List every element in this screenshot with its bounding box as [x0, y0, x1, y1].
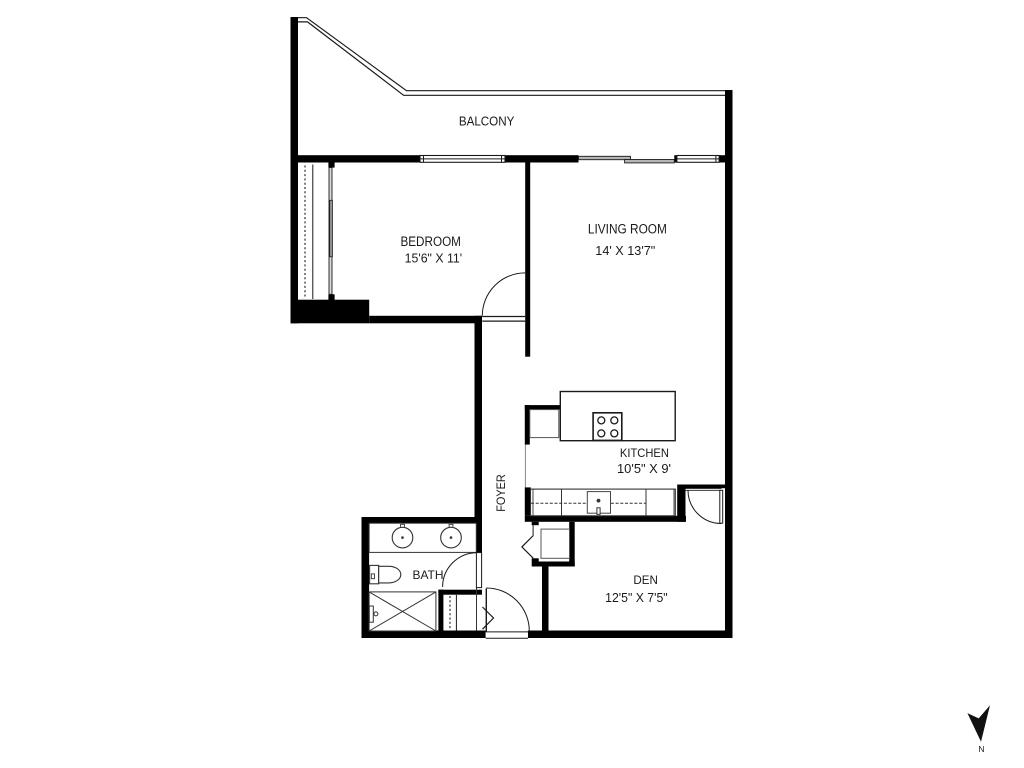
- svg-text:15'6" X 11': 15'6" X 11': [405, 251, 463, 266]
- svg-text:BATH: BATH: [413, 568, 444, 582]
- svg-text:BALCONY: BALCONY: [459, 113, 515, 128]
- svg-text:FOYER: FOYER: [494, 474, 508, 512]
- svg-text:14' X 13'7": 14' X 13'7": [595, 243, 655, 258]
- svg-text:10'5" X 9': 10'5" X 9': [617, 462, 671, 476]
- svg-text:N: N: [978, 744, 984, 754]
- svg-text:LIVING ROOM: LIVING ROOM: [588, 222, 667, 237]
- svg-text:DEN: DEN: [633, 573, 658, 587]
- svg-text:12'5" X 7'5": 12'5" X 7'5": [605, 590, 668, 605]
- svg-text:BEDROOM: BEDROOM: [400, 234, 461, 249]
- svg-text:KITCHEN: KITCHEN: [620, 446, 669, 460]
